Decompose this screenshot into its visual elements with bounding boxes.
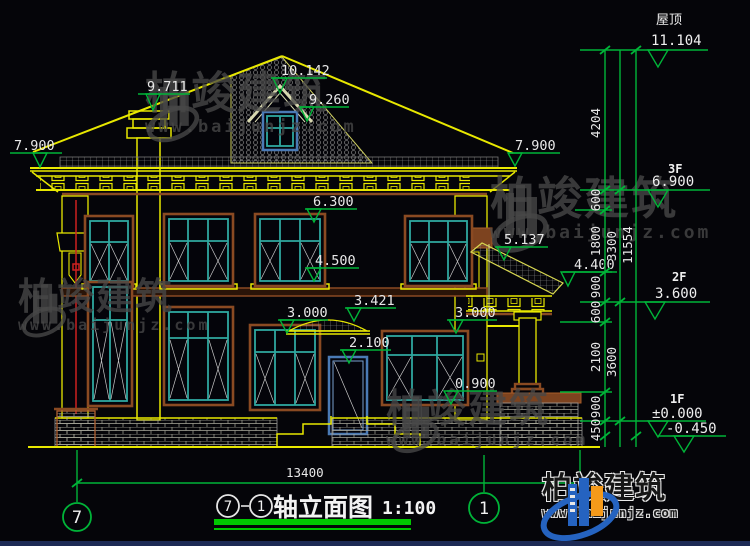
level-roof-label: 屋顶 <box>656 13 682 28</box>
brand-logo: 柏竣建筑 www.baijunjz.com <box>538 474 678 520</box>
dim-seg-600a: 600 <box>588 189 603 212</box>
elevation-chimney: 9.711 <box>147 79 188 95</box>
elevation-eave-left: 7.900 <box>14 138 55 154</box>
dim-seg-1800: 1800 <box>588 226 603 256</box>
elevation-markers: 9.711 10.142 9.260 7.900 7.900 6.300 4.5… <box>10 63 617 404</box>
title-scale: 1:100 <box>382 498 436 519</box>
bottom-strip <box>0 541 750 546</box>
dim-seg-600b: 600 <box>588 301 603 324</box>
dim-floor-2to1: 3600 <box>604 347 619 377</box>
dim-seg-900a: 900 <box>588 276 603 299</box>
level-1f-label: 1F <box>670 392 684 406</box>
cad-canvas[interactable]: 柏竣建筑 www.baijunjz.com 柏竣建筑 www.baijunjz.… <box>0 0 750 546</box>
axis-left-number: 7 <box>72 508 82 528</box>
elevation-door-top: 2.100 <box>349 335 390 351</box>
elevation-awning: 3.421 <box>354 293 395 309</box>
level-1f-value: ±0.000 <box>652 406 703 422</box>
elevation-win-top-left: 3.000 <box>287 305 328 321</box>
axis-right-number: 1 <box>479 499 489 519</box>
level-roof-value: 11.104 <box>651 33 702 49</box>
annotations: 9.711 10.142 9.260 7.900 7.900 6.300 4.5… <box>0 0 750 546</box>
dim-overall-width: 13400 <box>286 465 324 480</box>
level-2f-value: 3.600 <box>655 286 697 302</box>
title-text: 轴立面图 <box>273 493 373 522</box>
dimension-chain-vertical: 4204 600 1800 900 600 2100 900 450 3300 … <box>560 46 641 447</box>
drawing-title: 7 1 轴立面图 1:100 <box>214 493 436 530</box>
level-3f-value: 6.900 <box>652 174 694 190</box>
elevation-porch-top: 5.137 <box>504 232 545 248</box>
elevation-sill-2f: 4.500 <box>315 253 356 269</box>
elevation-eave-right: 7.900 <box>515 138 556 154</box>
title-axis-a: 7 <box>224 499 232 515</box>
dim-seg-roof: 4204 <box>588 108 603 138</box>
elevation-ridge: 10.142 <box>281 63 330 79</box>
dim-seg-2100: 2100 <box>588 342 603 372</box>
level-2f-label: 2F <box>672 270 686 284</box>
title-underline-thin <box>214 528 411 530</box>
dim-seg-900b: 900 <box>588 396 603 419</box>
dim-seg-450: 450 <box>588 419 603 442</box>
elevation-win-top-right: 3.000 <box>455 305 496 321</box>
dim-overall-height: 11554 <box>620 226 635 264</box>
dim-floor-3to2: 3300 <box>604 231 619 261</box>
title-underline-thick <box>214 519 411 525</box>
level-ground-value: -0.450 <box>666 421 717 437</box>
elevation-sill-1f: 0.900 <box>455 376 496 392</box>
title-axis-b: 1 <box>257 499 265 515</box>
elevation-cornice: 6.300 <box>313 194 354 210</box>
brand-logo-icon <box>538 474 626 544</box>
elevation-dormer: 9.260 <box>309 92 350 108</box>
